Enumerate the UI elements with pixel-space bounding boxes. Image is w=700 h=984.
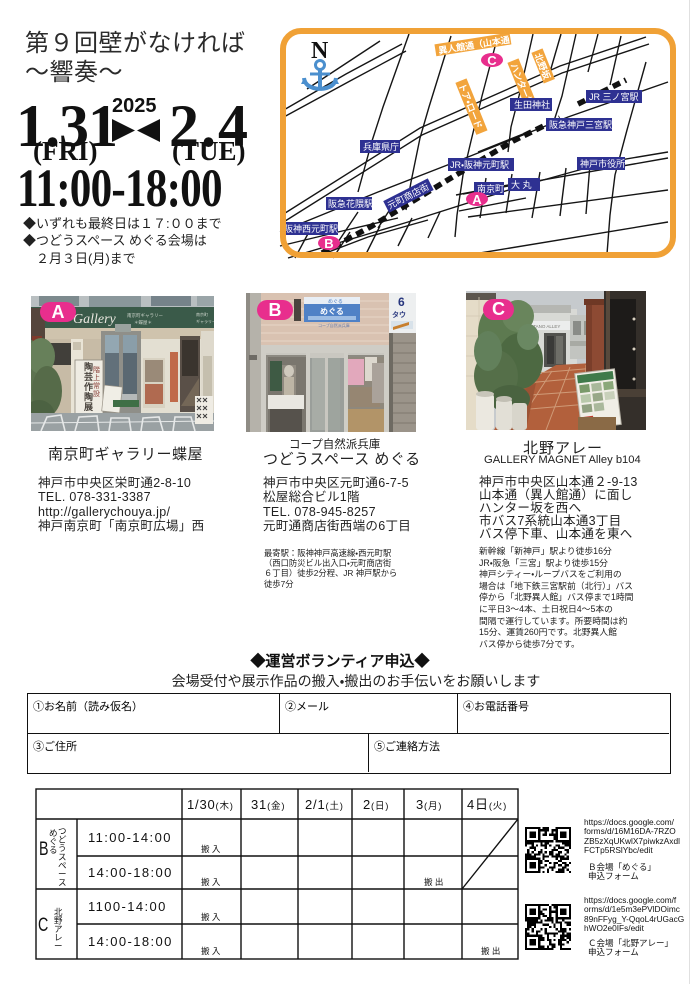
svg-text:南京町ギャラリー: 南京町ギャラリー bbox=[127, 312, 163, 319]
svg-text:2(日): 2(日) bbox=[363, 797, 389, 812]
svg-text:1/30(木): 1/30(木) bbox=[187, 797, 234, 812]
svg-text:陶芸作陶展: 陶芸作陶展 bbox=[84, 361, 93, 412]
svg-text:C: C bbox=[487, 53, 497, 68]
svg-text:神戸市役所: 神戸市役所 bbox=[580, 158, 625, 169]
svg-text:搬 入: 搬 入 bbox=[201, 912, 221, 922]
svg-text:阪急神戸三宮駅: 阪急神戸三宮駅 bbox=[549, 119, 612, 130]
svg-text:搬 入: 搬 入 bbox=[201, 946, 221, 956]
svg-text:＊蝶屋＊: ＊蝶屋＊ bbox=[134, 319, 152, 326]
svg-text:兵庫県庁: 兵庫県庁 bbox=[363, 141, 399, 152]
svg-text:大 丸: 大 丸 bbox=[511, 179, 532, 190]
svg-text:搬 出: 搬 出 bbox=[424, 877, 443, 887]
svg-text:ギャラリー: ギャラリー bbox=[196, 318, 214, 324]
svg-text:A: A bbox=[472, 192, 482, 207]
svg-text:阪神西元町駅: 阪神西元町駅 bbox=[284, 223, 338, 234]
svg-text:JR 三ノ宮駅: JR 三ノ宮駅 bbox=[589, 91, 639, 102]
svg-text:阪急花隈駅: 阪急花隈駅 bbox=[328, 198, 373, 209]
svg-text:2/1(土): 2/1(土) bbox=[305, 797, 344, 812]
svg-text:6: 6 bbox=[398, 295, 405, 309]
svg-text:JR・阪神元町駅: JR・阪神元町駅 bbox=[450, 159, 509, 170]
svg-text:31(金): 31(金) bbox=[251, 797, 285, 812]
svg-text:搬 出: 搬 出 bbox=[481, 946, 500, 956]
svg-text:1100-14:00: 1100-14:00 bbox=[88, 899, 167, 914]
svg-text:異人館通（山本通: 異人館通（山本通 bbox=[438, 34, 512, 56]
svg-text:搬 入: 搬 入 bbox=[201, 844, 221, 854]
svg-text:タウ: タウ bbox=[392, 310, 406, 319]
svg-text:4日(火): 4日(火) bbox=[467, 797, 507, 812]
svg-text:14:00-18:00: 14:00-18:00 bbox=[88, 865, 173, 880]
svg-text:つどうスペース: つどうスペース bbox=[58, 826, 67, 888]
svg-text:生田神社: 生田神社 bbox=[514, 99, 550, 110]
svg-text:搬 入: 搬 入 bbox=[201, 877, 221, 887]
svg-text:C: C bbox=[38, 914, 48, 935]
svg-text:めぐる: めぐる bbox=[328, 299, 343, 305]
svg-text:南京町: 南京町 bbox=[196, 311, 208, 317]
svg-text:3(月): 3(月) bbox=[416, 797, 442, 812]
svg-text:14:00-18:00: 14:00-18:00 bbox=[88, 934, 173, 949]
svg-text:コープ自然派兵庫: コープ自然派兵庫 bbox=[318, 322, 350, 328]
svg-text:11:00-14:00: 11:00-14:00 bbox=[88, 830, 172, 845]
svg-text:めぐる: めぐる bbox=[49, 828, 58, 855]
svg-text:めぐる: めぐる bbox=[320, 307, 344, 316]
svg-text:B: B bbox=[39, 838, 49, 859]
svg-text:階上常設: 階上常設 bbox=[93, 365, 100, 398]
svg-text:北野アレー: 北野アレー bbox=[54, 907, 63, 951]
svg-text:Gallery: Gallery bbox=[73, 312, 117, 327]
svg-text:B: B bbox=[324, 236, 333, 251]
